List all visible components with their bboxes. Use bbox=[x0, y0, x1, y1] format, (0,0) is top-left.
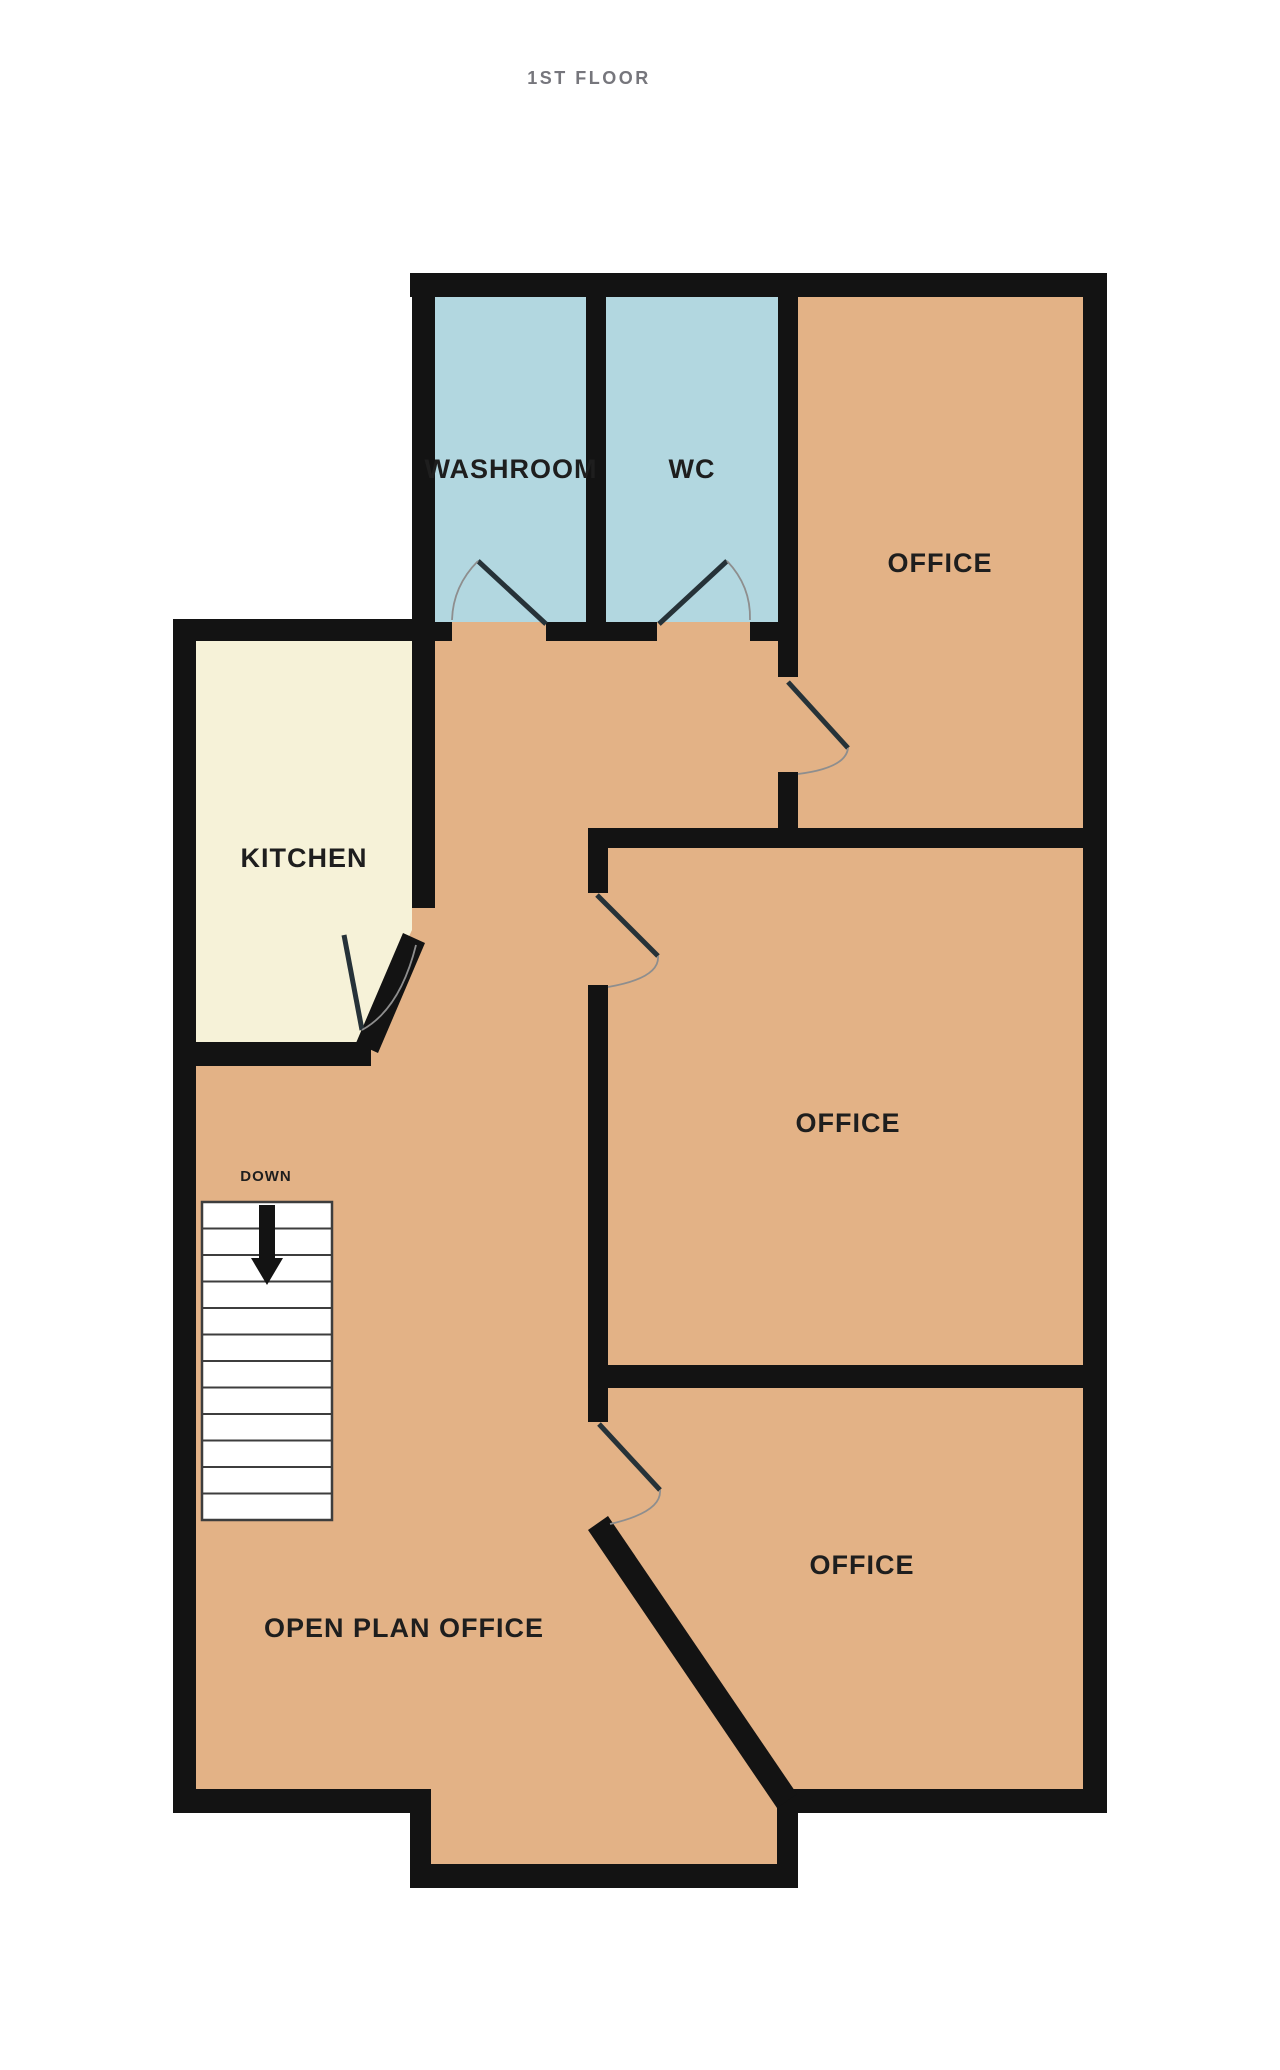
wall-office-middle-top bbox=[588, 828, 1083, 848]
wall-wc-right bbox=[778, 297, 798, 677]
wall-office-middle-bottom bbox=[588, 1365, 1083, 1388]
wall-notch-bottom bbox=[410, 1864, 798, 1888]
wall-upper-left bbox=[412, 273, 435, 908]
wall-wc-bottom-right bbox=[750, 622, 798, 641]
wall-washroom-wc-bottom-mid bbox=[546, 622, 657, 641]
wall-bottom-left bbox=[173, 1789, 431, 1813]
wall-top bbox=[410, 273, 1107, 297]
wall-left bbox=[173, 619, 196, 1813]
open-plan-office-label: OPEN PLAN OFFICE bbox=[264, 1613, 544, 1643]
wall-office-bottom-stub bbox=[588, 1388, 608, 1422]
wc-label: WC bbox=[669, 454, 716, 484]
floor-plan-svg: 1ST FLOOR bbox=[0, 0, 1280, 2070]
stairs-down-label: DOWN bbox=[240, 1168, 292, 1185]
room-office-middle bbox=[608, 848, 1083, 1365]
wall-washroom-bottom-left bbox=[435, 622, 452, 641]
wall-kitchen-bottom bbox=[173, 1042, 371, 1066]
wall-bottom-right bbox=[777, 1789, 1107, 1813]
office-top-label: OFFICE bbox=[888, 548, 993, 578]
wall-notch-left bbox=[410, 1813, 431, 1888]
kitchen-label: KITCHEN bbox=[241, 843, 368, 873]
wall-office-middle-left-upper bbox=[588, 848, 608, 893]
room-kitchen bbox=[196, 641, 412, 1042]
wall-right bbox=[1083, 273, 1107, 1813]
office-middle-label: OFFICE bbox=[796, 1108, 901, 1138]
office-bottom-label: OFFICE bbox=[810, 1550, 915, 1580]
staircase: DOWN bbox=[202, 1168, 332, 1520]
wall-kitchen-top bbox=[173, 619, 435, 641]
wall-office-middle-left-lower bbox=[588, 985, 608, 1388]
washroom-label: WASHROOM bbox=[425, 454, 598, 484]
floor-plan-page: 1ST FLOOR bbox=[0, 0, 1280, 2070]
page-title: 1ST FLOOR bbox=[527, 68, 651, 88]
